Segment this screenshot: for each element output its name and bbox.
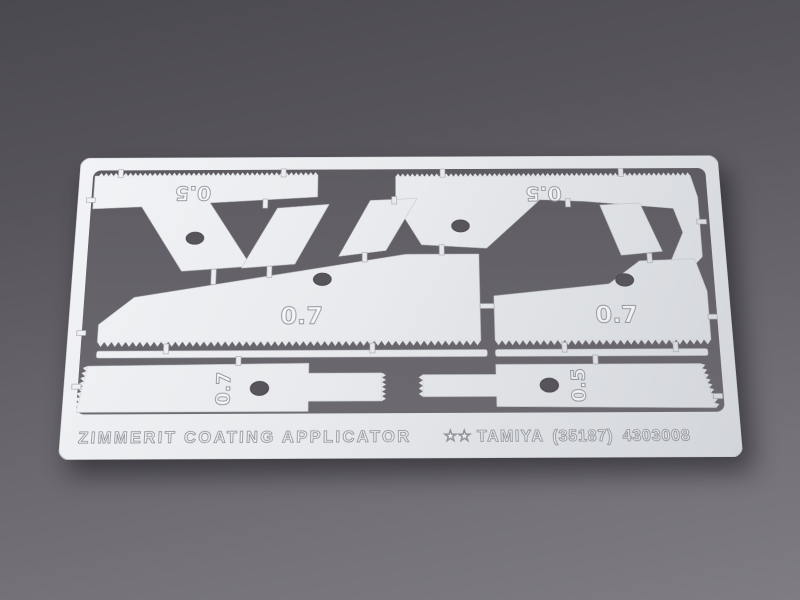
thickness-marking: 0.5: [525, 182, 562, 205]
attachment-tab: [77, 331, 86, 336]
thickness-marking: 0.7: [595, 301, 639, 328]
brand-engraving: TAMIYA: [477, 427, 545, 445]
footer-engraving: ZIMMERIT COATING APPLICATOR ★★ TAMIYA (3…: [78, 427, 692, 448]
attachment-tab: [440, 169, 445, 177]
product-photo: 0.5 0.5 0.7 0.7: [0, 0, 800, 600]
attachment-tab: [236, 357, 241, 366]
product-name-engraving: ZIMMERIT COATING APPLICATOR: [78, 428, 412, 448]
attachment-tab: [281, 169, 286, 177]
attachment-tab: [118, 169, 123, 177]
attachment-tab: [480, 304, 494, 309]
thickness-marking: 0.5: [174, 182, 211, 205]
attachment-tab: [267, 266, 272, 277]
attachment-tab: [562, 342, 567, 352]
hole: [186, 232, 204, 244]
hole: [452, 220, 470, 232]
attachment-tab: [362, 253, 367, 262]
hole: [615, 274, 634, 286]
attachment-tab: [263, 199, 268, 208]
attachment-tab: [593, 355, 599, 364]
etched-sheet: 0.5 0.5 0.7 0.7: [58, 155, 743, 460]
attachment-tab: [370, 343, 375, 353]
attachment-tab: [713, 393, 723, 398]
attachment-tab: [72, 384, 82, 389]
attachment-tab: [618, 168, 623, 176]
item-number-engraving: (35187): [552, 427, 614, 445]
hole: [250, 381, 269, 395]
hole: [540, 378, 559, 392]
thickness-marking: 0.7: [280, 303, 323, 330]
tamiya-logo-stars: ★★: [444, 428, 472, 444]
attachment-tab: [211, 269, 217, 284]
attachment-tab: [673, 342, 679, 352]
thickness-marking: 0.5: [568, 368, 592, 402]
part-number-engraving: 4303008: [622, 427, 691, 445]
attachment-tab: [439, 245, 444, 255]
waste-strip: [96, 350, 487, 359]
attachment-tab: [86, 198, 95, 203]
attachment-tab: [697, 219, 707, 224]
thickness-marking: 0.7: [212, 372, 235, 406]
attachment-tab: [163, 344, 169, 354]
attachment-tab: [708, 314, 717, 319]
attachment-tab: [392, 197, 397, 204]
attachment-tab: [565, 199, 570, 207]
etched-sheet-wrapper: 0.5 0.5 0.7 0.7: [58, 155, 743, 460]
attachment-tab: [647, 253, 653, 262]
hole: [313, 273, 331, 285]
